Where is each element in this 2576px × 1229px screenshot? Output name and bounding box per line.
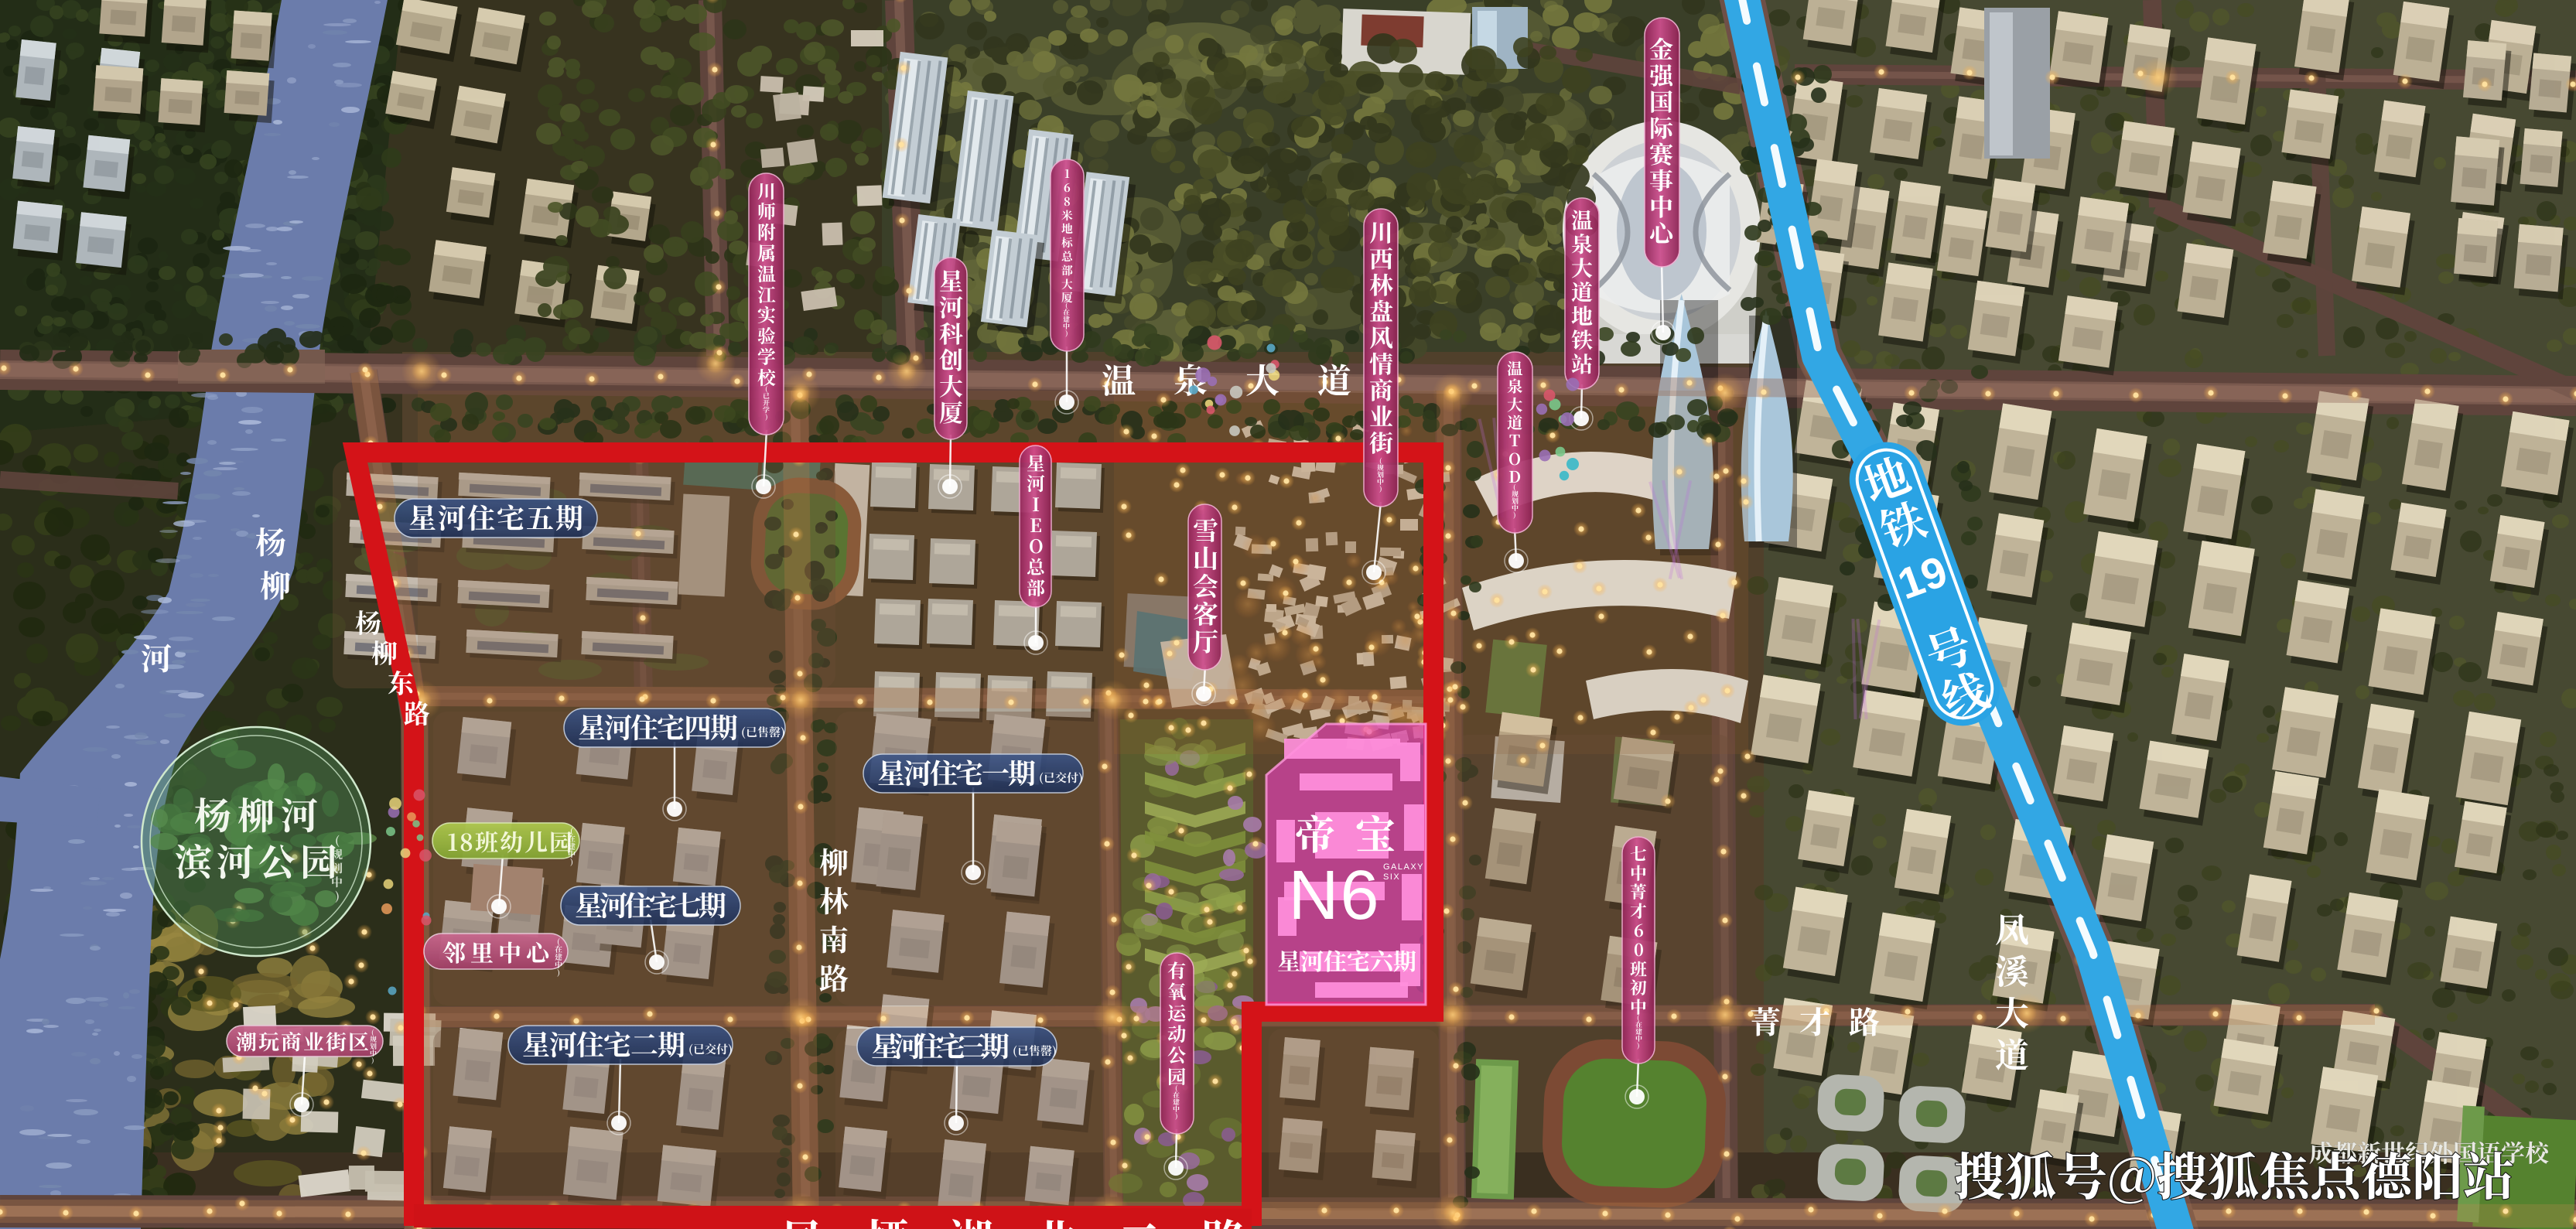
svg-text:N6: N6 xyxy=(1288,857,1380,934)
svg-text:GALAXY: GALAXY xyxy=(1383,862,1424,872)
svg-text:SIX: SIX xyxy=(1383,872,1400,882)
